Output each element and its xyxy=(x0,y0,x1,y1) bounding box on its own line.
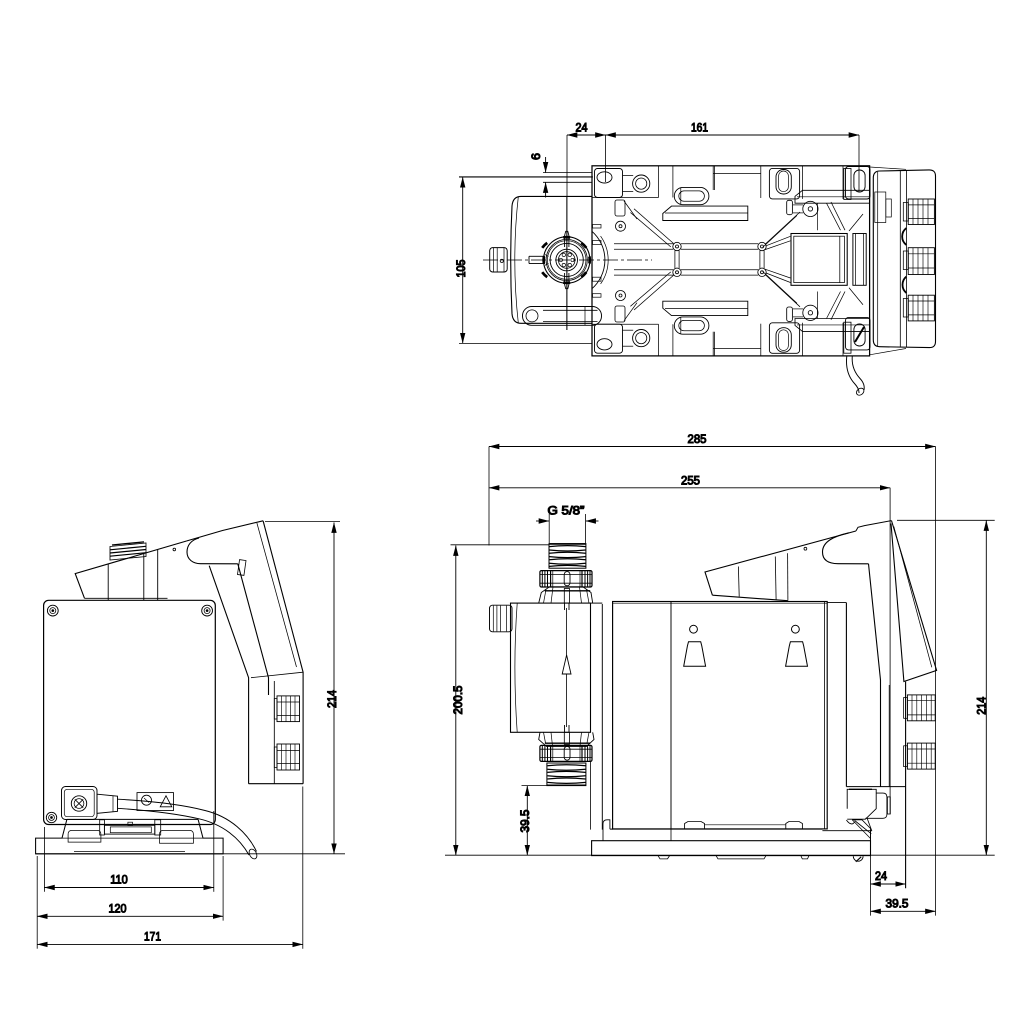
svg-text:105: 105 xyxy=(454,259,468,277)
svg-text:24: 24 xyxy=(576,121,588,135)
svg-text:171: 171 xyxy=(144,929,161,943)
svg-text:39.5: 39.5 xyxy=(886,896,909,910)
svg-text:120: 120 xyxy=(109,901,127,915)
svg-text:24: 24 xyxy=(875,869,887,883)
svg-text:214: 214 xyxy=(325,690,339,708)
svg-text:214: 214 xyxy=(975,696,989,714)
svg-text:285: 285 xyxy=(688,432,707,446)
svg-text:161: 161 xyxy=(691,121,708,135)
svg-text:39.5: 39.5 xyxy=(518,809,532,832)
svg-text:G 5/8”: G 5/8” xyxy=(548,504,585,518)
svg-text:200.5: 200.5 xyxy=(451,685,465,714)
svg-text:255: 255 xyxy=(681,473,700,487)
svg-text:110: 110 xyxy=(110,873,128,887)
svg-text:6: 6 xyxy=(529,153,543,160)
